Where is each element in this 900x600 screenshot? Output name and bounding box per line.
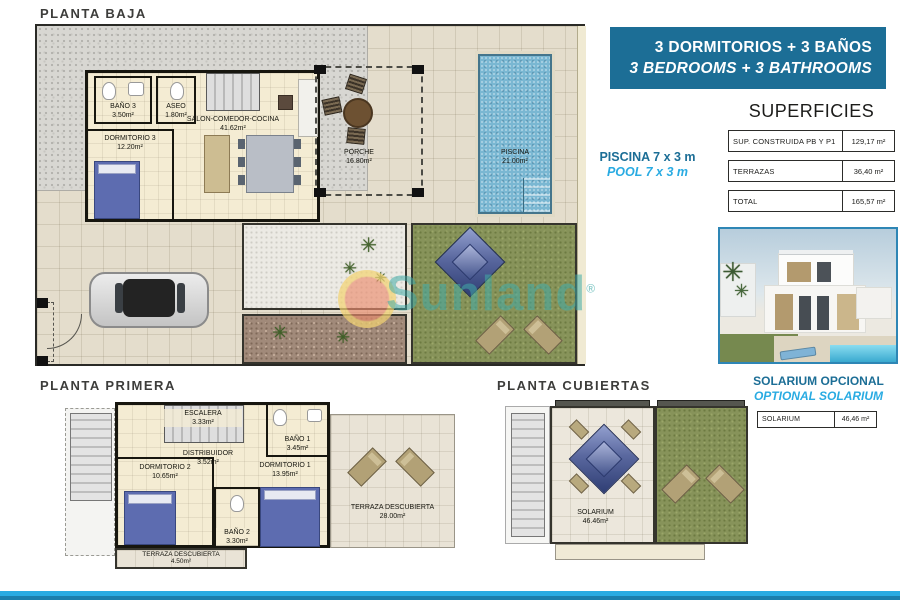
lawn-area xyxy=(411,223,577,364)
room-area: 10.65m² xyxy=(118,472,212,481)
toilet-icon xyxy=(230,495,244,512)
room-area: 16.80m² xyxy=(317,157,401,166)
room-area: 3.33m² xyxy=(164,418,242,427)
room-label-terraza-grande: TERRAZA DESCUBIERTA 28.00m² xyxy=(331,503,454,521)
superficies-row: TERRAZAS 36,40 m² xyxy=(728,160,895,182)
sink-icon xyxy=(128,82,144,96)
room-name: TERRAZA DESCUBIERTA xyxy=(117,551,245,558)
porch-post xyxy=(412,65,424,74)
room-name: BAÑO 1 xyxy=(268,435,327,444)
pool-steps xyxy=(523,178,550,212)
roof-plan: SOLARIUM 46.46m² xyxy=(505,398,748,566)
room-dorm3: DORMITORIO 3 12.20m² xyxy=(88,129,174,222)
room-bano3: BAÑO 3 3.50m² xyxy=(94,76,152,124)
chair-icon xyxy=(294,139,301,149)
porch-post xyxy=(314,188,326,197)
registered-mark: ® xyxy=(586,282,596,296)
sun-lounger xyxy=(705,464,745,504)
room-area: 46.46m² xyxy=(552,517,639,526)
chair-icon xyxy=(345,74,367,95)
exterior-stairs xyxy=(511,413,545,537)
solarium-note-es: SOLARIUM OPCIONAL xyxy=(742,374,895,388)
room-label-solarium: SOLARIUM 46.46m² xyxy=(552,508,639,526)
coffee-table xyxy=(278,95,293,110)
pool-size-es: PISCINA 7 x 3 m xyxy=(580,150,715,164)
room-name: DORMITORIO 2 xyxy=(118,463,212,472)
car-windshield xyxy=(115,283,123,313)
room-name: SOLARIUM xyxy=(552,508,639,517)
room-name: BAÑO 2 xyxy=(216,528,258,537)
palm-icon: ✳ xyxy=(734,281,749,302)
room-name: DORMITORIO 1 xyxy=(240,461,330,470)
chair-icon xyxy=(238,157,245,167)
first-floor-plan: ESCALERA 3.33m² DISTRIBUIDOR 3.52m² BAÑO… xyxy=(65,394,460,570)
room-area: 3.45m² xyxy=(268,444,327,453)
superficies-row: TOTAL 165,57 m² xyxy=(728,190,895,212)
round-table xyxy=(343,98,373,128)
room-bano1: BAÑO 1 3.45m² xyxy=(266,405,327,457)
room-name: ESCALERA xyxy=(164,409,242,418)
brown-gravel-patch: ✳ ✳ xyxy=(242,314,407,364)
room-label-bano3: BAÑO 3 3.50m² xyxy=(96,102,150,120)
bed-icon xyxy=(124,491,176,545)
roof-ledge xyxy=(555,544,705,560)
row-label: SOLARIUM xyxy=(758,416,834,423)
row-label: TOTAL xyxy=(729,197,842,206)
title-planta-cubiertas: PLANTA CUBIERTAS xyxy=(497,378,651,393)
superficies-title: SUPERFICIES xyxy=(728,101,895,122)
palm-icon: ✳ xyxy=(272,322,288,345)
house-outline: BAÑO 3 3.50m² ASEO 1.80m² SALON-COMEDOR-… xyxy=(85,70,320,222)
room-area: 3.30m² xyxy=(216,537,258,546)
sun-lounger xyxy=(475,315,515,355)
bed-icon xyxy=(260,487,320,547)
room-name: DISTRIBUIDOR xyxy=(160,449,256,458)
room-label-bano2: BAÑO 2 3.30m² xyxy=(216,528,258,546)
row-label: SUP. CONSTRUIDA PB Y P1 xyxy=(729,137,842,146)
pool-size-note: PISCINA 7 x 3 m POOL 7 x 3 m xyxy=(580,150,715,179)
palm-icon: ✳ xyxy=(336,328,350,348)
pergola xyxy=(435,227,506,298)
bench-icon xyxy=(569,419,590,440)
staircase xyxy=(206,73,260,111)
chair-icon xyxy=(238,139,245,149)
large-terrace: TERRAZA DESCUBIERTA 28.00m² xyxy=(330,414,455,548)
room-dorm2: DORMITORIO 2 10.65m² xyxy=(118,457,214,548)
room-area: 13.95m² xyxy=(240,470,330,479)
palm-icon: ✳ xyxy=(343,259,357,279)
kitchen-island xyxy=(204,135,230,193)
solarium-area: SOLARIUM 46.46m² xyxy=(550,406,655,544)
exterior-stairs xyxy=(70,413,112,501)
room-label-porche: PORCHE 16.80m² xyxy=(317,148,401,166)
room-label-dorm2: DORMITORIO 2 10.65m² xyxy=(118,463,212,481)
room-label-dorm1: DORMITORIO 1 13.95m² xyxy=(240,461,330,479)
stairwell-void xyxy=(65,408,115,556)
room-area: 4.50m² xyxy=(117,558,245,565)
pool-size-en: POOL 7 x 3 m xyxy=(580,165,715,179)
title-planta-primera: PLANTA PRIMERA xyxy=(40,378,176,393)
footer-blue-bar xyxy=(0,596,900,600)
photo-roof-railing xyxy=(779,250,853,255)
row-label: TERRAZAS xyxy=(729,167,842,176)
room-label-escalera: ESCALERA 3.33m² xyxy=(164,409,242,427)
room-area: 21.00m² xyxy=(480,157,550,166)
room-name: PORCHE xyxy=(317,148,401,157)
room-name: ASEO xyxy=(158,102,194,111)
row-value: 129,17 m² xyxy=(842,131,894,151)
room-name: PISCINA xyxy=(480,148,550,157)
sun-lounger xyxy=(523,315,563,355)
chair-icon xyxy=(322,96,343,115)
room-area: 41.62m² xyxy=(163,124,303,133)
gate-post xyxy=(37,356,48,366)
superficies-row: SUP. CONSTRUIDA PB Y P1 129,17 m² xyxy=(728,130,895,152)
villa-photo: ✳ ✳ xyxy=(718,227,898,364)
bench-icon xyxy=(621,473,642,494)
row-value: 46,46 m² xyxy=(834,412,876,427)
photo-stone-cladding xyxy=(775,294,793,330)
bed-icon xyxy=(94,161,140,219)
door-swing-arc xyxy=(47,314,82,349)
room-label-piscina: PISCINA 21.00m² xyxy=(480,148,550,166)
bench-icon xyxy=(621,419,642,440)
brochure-page: { "accent": {"dark_blue": "#1c6e96", "li… xyxy=(0,0,900,600)
palm-icon: ✳ xyxy=(360,233,377,258)
sink-icon xyxy=(307,409,322,422)
photo-window xyxy=(799,296,811,330)
photo-pool xyxy=(830,345,896,362)
photo-villa-upper xyxy=(778,253,854,287)
row-value: 165,57 m² xyxy=(842,191,894,211)
porch-area: PORCHE 16.80m² xyxy=(315,66,423,196)
side-strip xyxy=(577,26,586,364)
toilet-icon xyxy=(102,82,116,100)
photo-stone-cladding xyxy=(787,262,811,282)
solarium-note-en: OPTIONAL SOLARIUM xyxy=(742,389,895,403)
photo-window xyxy=(817,296,829,330)
dining-table xyxy=(246,135,294,193)
title-planta-baja: PLANTA BAJA xyxy=(40,6,147,21)
photo-side-wing xyxy=(856,287,892,319)
small-terrace: TERRAZA DESCUBIERTA 4.50m² xyxy=(115,548,247,569)
room-area: 12.20m² xyxy=(88,143,172,152)
palm-icon: ✳ xyxy=(374,269,387,287)
stair-surround xyxy=(505,406,550,544)
room-area: 3.50m² xyxy=(96,111,150,120)
roof-garden xyxy=(655,406,748,544)
room-name: SALON-COMEDOR-COCINA xyxy=(163,115,303,124)
room-name: BAÑO 3 xyxy=(96,102,150,111)
room-label-dorm3: DORMITORIO 3 12.20m² xyxy=(88,134,172,152)
house-outline: ESCALERA 3.33m² DISTRIBUIDOR 3.52m² BAÑO… xyxy=(115,402,330,548)
row-value: 36,40 m² xyxy=(842,161,894,181)
ground-floor-plan: PISCINA 21.00m² BAÑO 3 3.50m² ASEO 1.80m… xyxy=(35,24,585,366)
room-label-terraza-chica: TERRAZA DESCUBIERTA 4.50m² xyxy=(117,551,245,565)
room-name: TERRAZA DESCUBIERTA xyxy=(331,503,454,512)
room-bano2: BAÑO 2 3.30m² xyxy=(214,487,260,548)
bedrooms-banner: 3 DORMITORIOS + 3 BAÑOS 3 BEDROOMS + 3 B… xyxy=(610,27,886,89)
room-label-salon: SALON-COMEDOR-COCINA 41.62m² xyxy=(163,115,303,133)
toilet-icon xyxy=(170,82,184,100)
porch-post xyxy=(314,65,326,74)
sun-lounger xyxy=(395,447,435,487)
car-icon xyxy=(89,272,209,328)
chair-icon xyxy=(294,157,301,167)
toilet-icon xyxy=(273,409,287,426)
sun-lounger xyxy=(661,464,701,504)
photo-villa-lower xyxy=(764,285,866,333)
banner-line-es: 3 DORMITORIOS + 3 BAÑOS xyxy=(655,39,872,57)
photo-window xyxy=(817,262,831,282)
car-rear-window xyxy=(177,283,185,313)
chair-icon xyxy=(346,127,366,145)
porch-post xyxy=(412,188,424,197)
banner-line-en: 3 BEDROOMS + 3 BATHROOMS xyxy=(630,60,872,78)
car-roof xyxy=(123,279,175,317)
chair-icon xyxy=(294,175,301,185)
white-gravel-patch: ✳ ✳ ✳ xyxy=(242,223,407,310)
gate-post xyxy=(37,298,48,308)
room-name: DORMITORIO 3 xyxy=(88,134,172,143)
sun-lounger xyxy=(347,447,387,487)
chair-icon xyxy=(238,175,245,185)
room-label-bano1: BAÑO 1 3.45m² xyxy=(268,435,327,453)
solarium-note: SOLARIUM OPCIONAL OPTIONAL SOLARIUM xyxy=(742,374,895,403)
solarium-row: SOLARIUM 46,46 m² xyxy=(757,411,877,428)
pool: PISCINA 21.00m² xyxy=(478,54,552,214)
room-area: 28.00m² xyxy=(331,512,454,521)
